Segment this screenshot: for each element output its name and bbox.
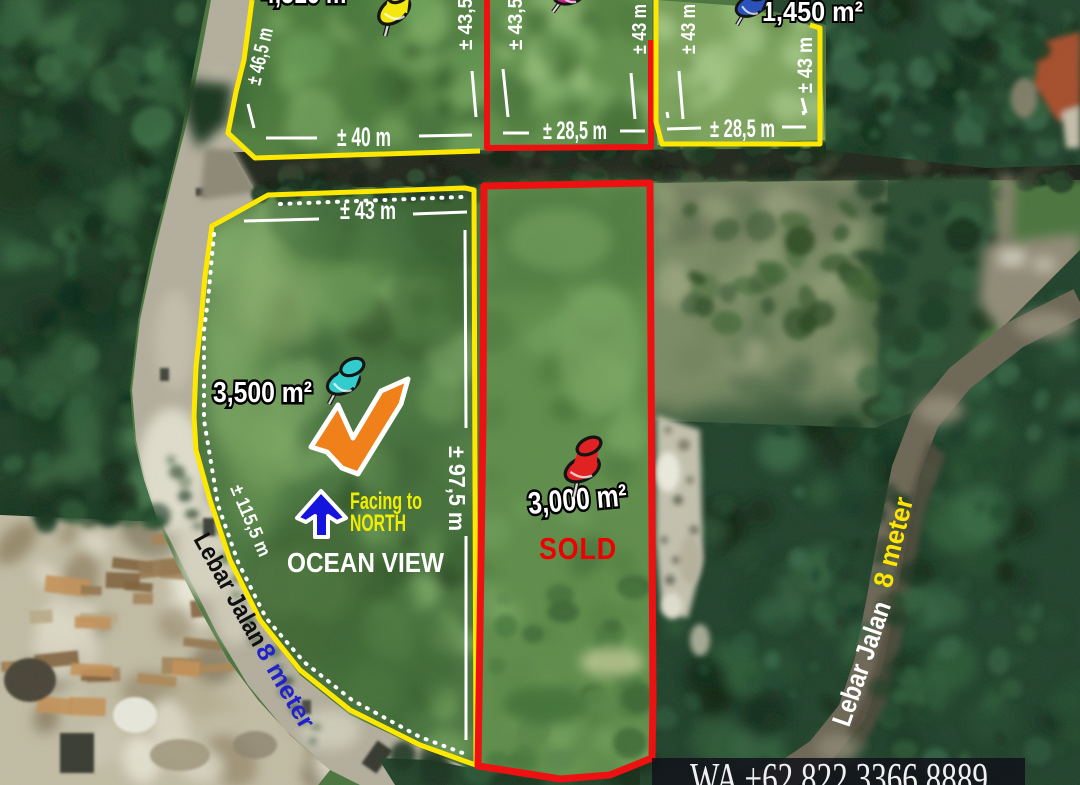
svg-text:± 43 m: ± 43 m [678, 4, 700, 54]
svg-text:WA +62 822 3366 8889: WA +62 822 3366 8889 [690, 754, 988, 785]
svg-text:± 43 m: ± 43 m [794, 37, 817, 93]
svg-text:± 43 m: ± 43 m [340, 197, 396, 225]
svg-text:± 43 m: ± 43 m [629, 4, 651, 54]
svg-text:3,500 m²: 3,500 m² [213, 377, 312, 409]
svg-text:± 43,5: ± 43,5 [505, 0, 527, 50]
svg-text:SOLD: SOLD [539, 531, 617, 566]
svg-text:± 43,5: ± 43,5 [455, 0, 477, 50]
svg-text:± 28,5 m: ± 28,5 m [710, 115, 775, 143]
svg-text:± 97,5 m: ± 97,5 m [444, 446, 470, 531]
svg-text:± 40 m: ± 40 m [337, 122, 391, 152]
svg-text:± 28,5 m: ± 28,5 m [543, 117, 607, 145]
svg-text:4,516 m²: 4,516 m² [262, 0, 354, 10]
svg-text:NORTH: NORTH [350, 510, 406, 537]
svg-text:1,450 m²: 1,450 m² [762, 0, 863, 27]
svg-text:OCEAN VIEW: OCEAN VIEW [287, 547, 444, 578]
